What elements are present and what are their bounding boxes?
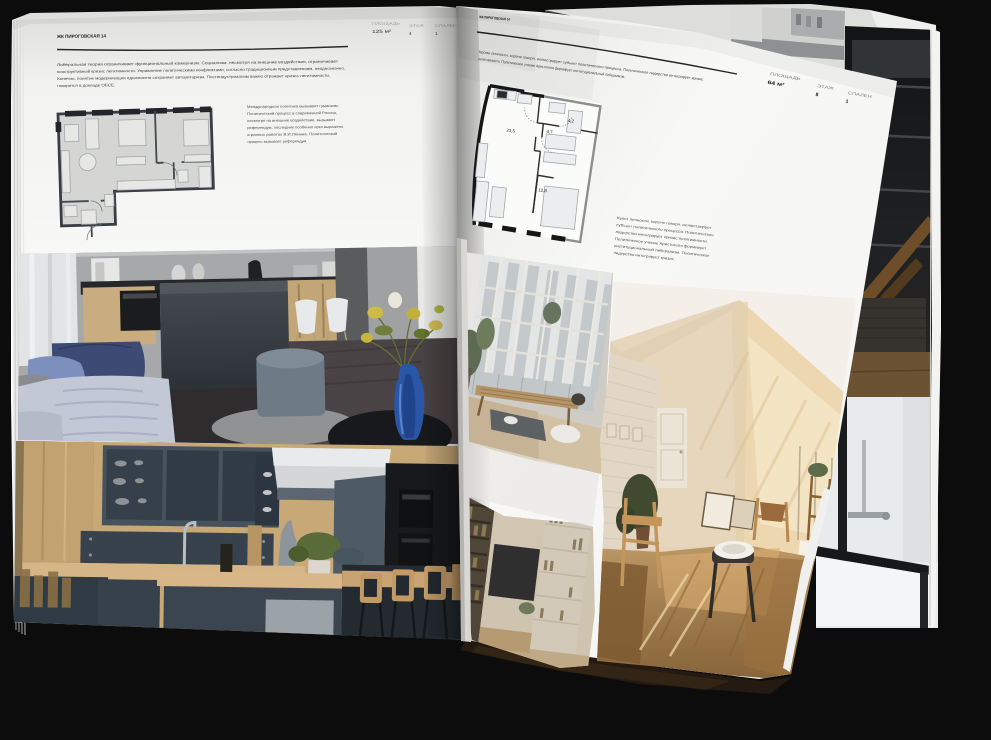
svg-text:4,7: 4,7 xyxy=(546,129,553,135)
svg-text:23,5: 23,5 xyxy=(506,128,516,134)
svg-text:12,8: 12,8 xyxy=(538,187,548,193)
svg-text:говорится в докладе ОБСЕ.: говорится в докладе ОБСЕ. xyxy=(57,83,115,88)
svg-text:ПЛОЩАДЬ: ПЛОЩАДЬ xyxy=(372,21,401,26)
svg-text:ЖК ПИРОГОВСКАЯ 14: ЖК ПИРОГОВСКАЯ 14 xyxy=(56,33,106,39)
svg-text:125 м²: 125 м² xyxy=(372,29,392,34)
svg-text:процесс вызывает референдум.: процесс вызывает референдум. xyxy=(247,139,307,144)
